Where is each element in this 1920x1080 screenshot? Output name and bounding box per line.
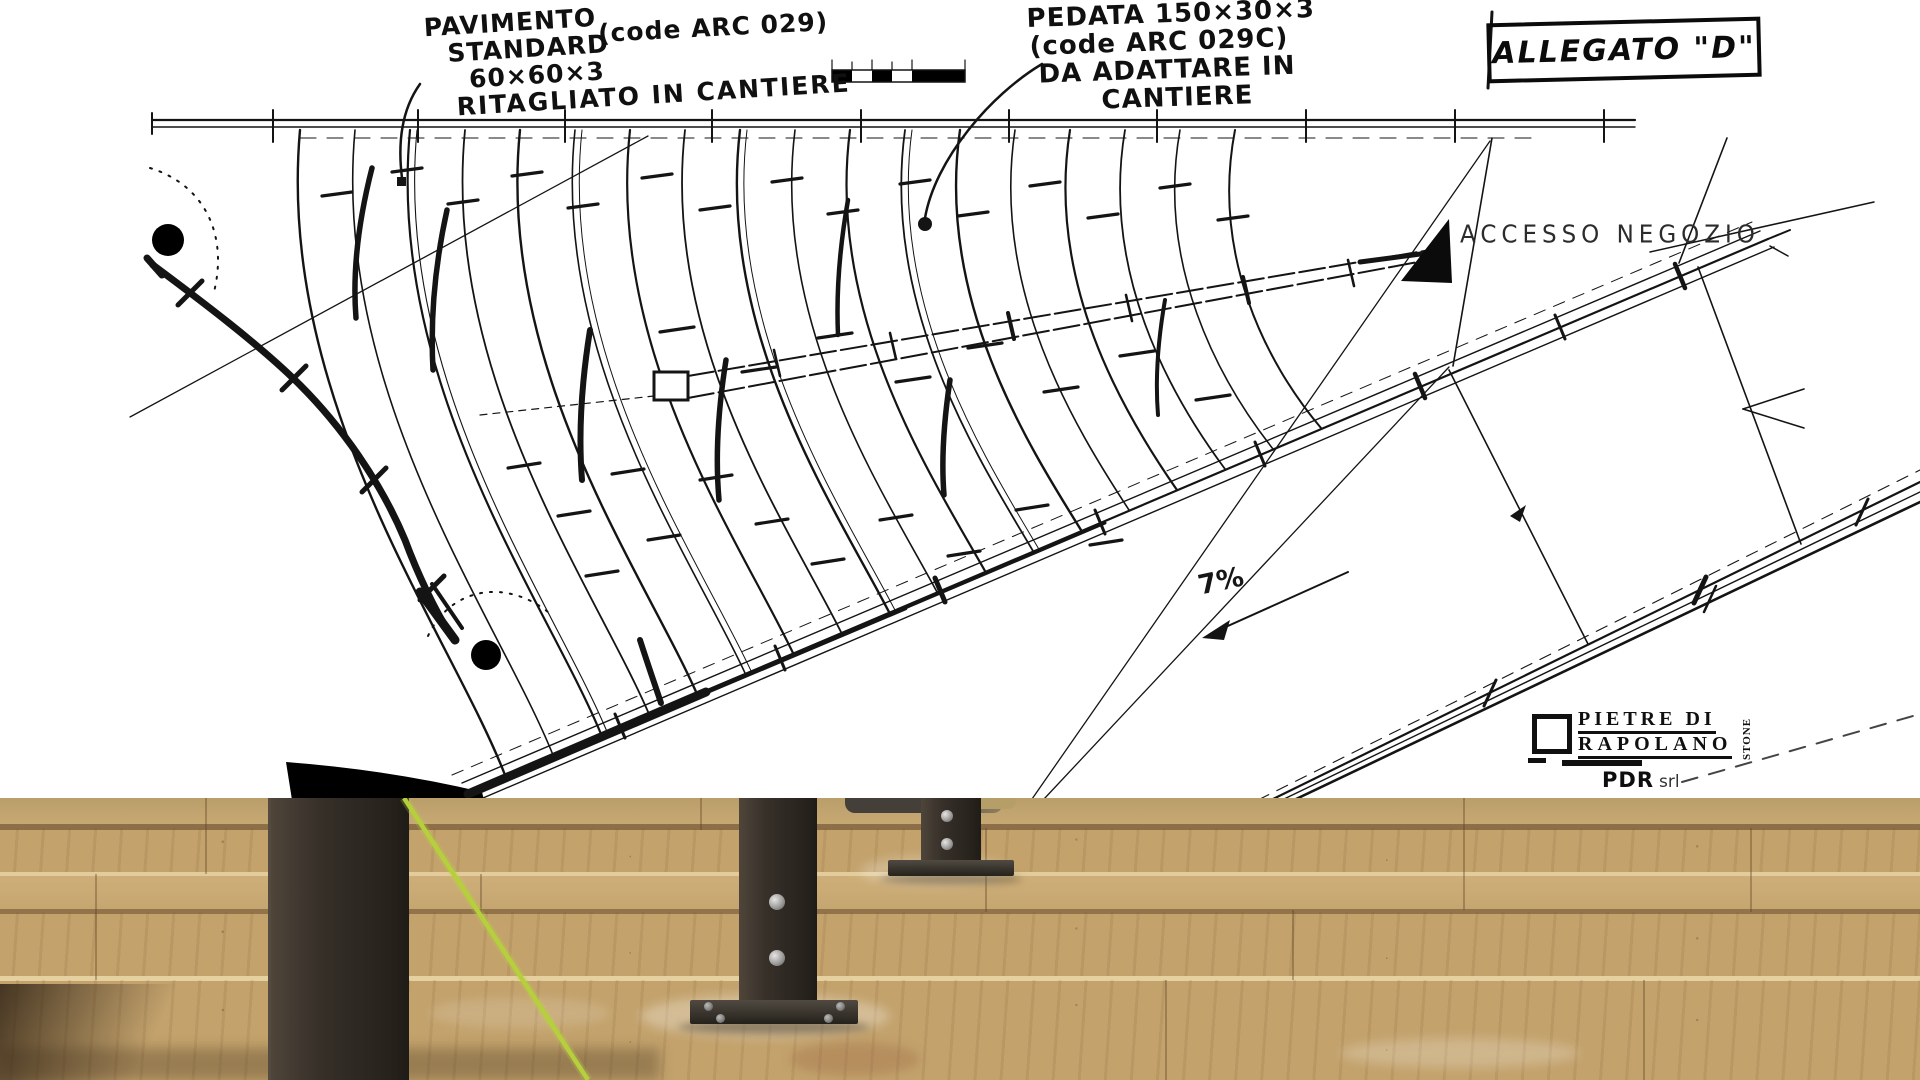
left-curb-arc — [147, 258, 462, 640]
allegato-title-box: ALLEGATO "D" — [1486, 17, 1761, 84]
column-dots — [150, 168, 548, 670]
logo-vertical-text: STONE — [1741, 712, 1757, 760]
pedata-note: PEDATA 150×30×3 (code ARC 029C) DA ADATT… — [1026, 0, 1318, 117]
composite-sheet: PAVIMENTO STANDARD 60×60×3 RITAGLIATO IN… — [0, 0, 1920, 1080]
logo-text-line1: PIETRE DI — [1578, 708, 1716, 734]
scale-bar — [832, 60, 965, 82]
stone-steps-photo — [0, 798, 1920, 1080]
plan-sketch-linework — [0, 0, 1920, 800]
bottom-wedge — [286, 762, 484, 800]
logo-company-name: PDRsrl — [1602, 768, 1680, 792]
top-dimension-line — [152, 110, 1635, 142]
step-overdraw-strokes — [355, 168, 1165, 703]
logo-text-line2: RAPOLANO — [1578, 733, 1732, 759]
curved-step-fan — [298, 130, 1321, 775]
logo-dash — [1528, 758, 1546, 763]
accesso-negozio-label: ACCESSO NEGOZIO — [1460, 221, 1760, 249]
photo-haze-overlay — [0, 798, 1920, 1080]
logo-company-abbr: PDR — [1602, 768, 1654, 792]
technical-drawing-sketch: PAVIMENTO STANDARD 60×60×3 RITAGLIATO IN… — [0, 0, 1920, 800]
logo-dash — [1562, 760, 1642, 766]
logo-company-suffix: srl — [1659, 772, 1680, 792]
sliver-ticks — [774, 260, 1354, 376]
logo-square-icon — [1532, 714, 1572, 754]
pedata-leader — [918, 64, 1042, 231]
